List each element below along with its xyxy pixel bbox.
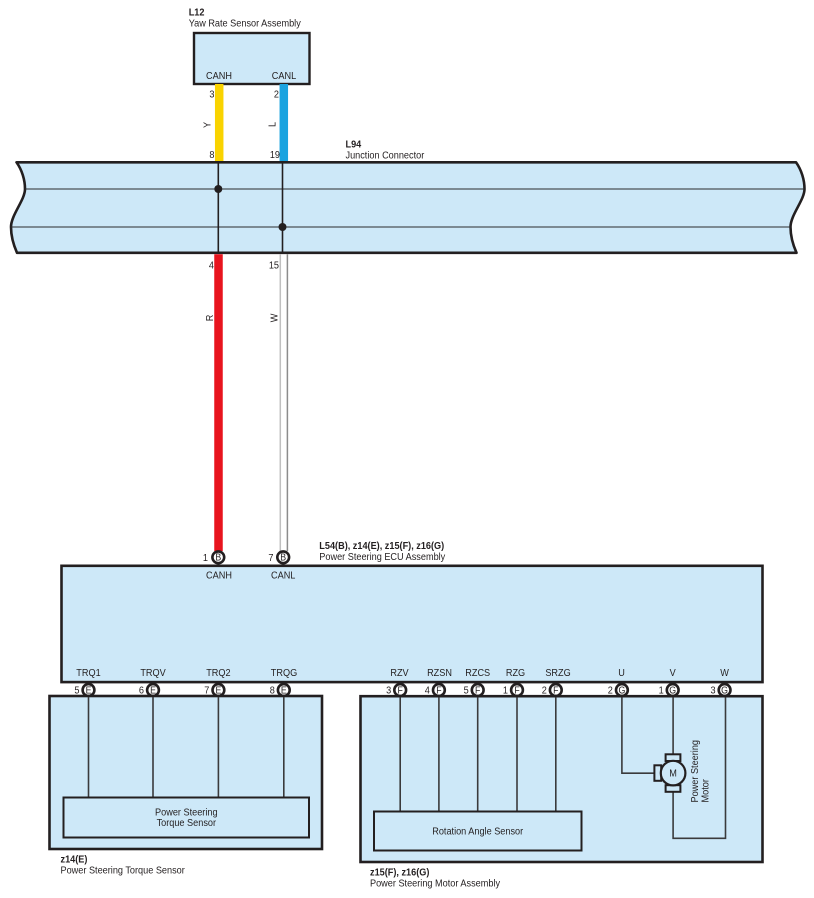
svg-text:G: G <box>618 684 625 696</box>
svg-text:19: 19 <box>270 150 280 162</box>
svg-text:7: 7 <box>268 552 273 564</box>
svg-text:TRQ1: TRQ1 <box>76 668 100 680</box>
svg-text:B: B <box>280 551 286 563</box>
svg-text:8: 8 <box>209 150 215 162</box>
svg-text:L: L <box>267 121 279 127</box>
svg-text:z14(E): z14(E) <box>61 854 88 866</box>
svg-text:Power Steering Torque Sensor: Power Steering Torque Sensor <box>61 865 186 877</box>
svg-text:W: W <box>720 668 729 680</box>
svg-text:F: F <box>398 684 404 696</box>
svg-text:15: 15 <box>269 260 280 272</box>
svg-text:RZG: RZG <box>506 668 525 680</box>
svg-text:Torque Sensor: Torque Sensor <box>157 818 217 830</box>
svg-text:RZCS: RZCS <box>465 668 490 680</box>
svg-text:V: V <box>670 668 677 680</box>
svg-text:F: F <box>514 684 520 696</box>
svg-text:G: G <box>669 684 676 696</box>
svg-text:Junction Connector: Junction Connector <box>346 150 425 162</box>
svg-text:Motor: Motor <box>700 778 712 802</box>
svg-text:F: F <box>553 684 559 696</box>
svg-text:E: E <box>281 684 287 696</box>
svg-text:Y: Y <box>202 122 214 129</box>
svg-text:Power Steering Motor Assembly: Power Steering Motor Assembly <box>370 878 500 890</box>
svg-text:M: M <box>669 768 677 780</box>
svg-text:Yaw Rate Sensor Assembly: Yaw Rate Sensor Assembly <box>189 18 301 30</box>
svg-text:TRQG: TRQG <box>271 668 297 680</box>
svg-text:RZV: RZV <box>390 668 409 680</box>
svg-text:CANH: CANH <box>206 570 232 582</box>
svg-text:3: 3 <box>209 89 215 101</box>
svg-text:Power Steering ECU Assembly: Power Steering ECU Assembly <box>319 551 445 563</box>
svg-text:E: E <box>150 684 156 696</box>
svg-text:B: B <box>215 551 221 563</box>
svg-text:F: F <box>475 684 481 696</box>
svg-text:RZSN: RZSN <box>427 668 452 680</box>
svg-text:2: 2 <box>274 89 279 101</box>
svg-text:TRQV: TRQV <box>140 668 166 680</box>
svg-text:G: G <box>721 684 728 696</box>
svg-text:U: U <box>618 668 625 680</box>
svg-text:CANH: CANH <box>206 70 232 82</box>
svg-text:E: E <box>215 684 221 696</box>
svg-text:CANL: CANL <box>272 70 297 82</box>
svg-text:CANL: CANL <box>271 570 296 582</box>
svg-text:F: F <box>436 684 442 696</box>
svg-text:W: W <box>269 313 281 322</box>
svg-text:E: E <box>86 684 92 696</box>
svg-text:SRZG: SRZG <box>545 668 570 680</box>
svg-text:z15(F), z16(G): z15(F), z16(G) <box>370 867 429 879</box>
svg-text:1: 1 <box>203 552 208 564</box>
svg-text:Rotation Angle Sensor: Rotation Angle Sensor <box>432 826 524 838</box>
svg-text:TRQ2: TRQ2 <box>206 668 230 680</box>
svg-text:L94: L94 <box>346 139 362 151</box>
svg-text:4: 4 <box>209 260 215 272</box>
svg-text:R: R <box>204 315 216 322</box>
